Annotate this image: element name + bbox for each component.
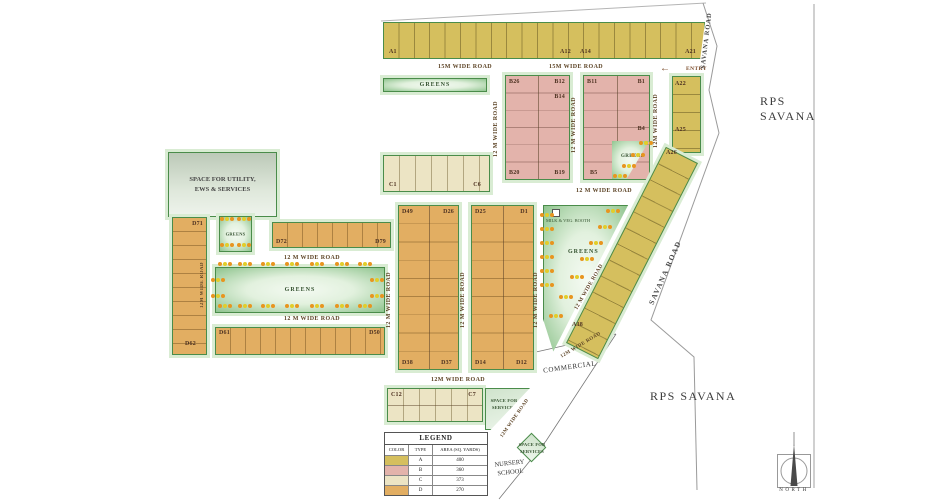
utility-block: SPACE FOR UTILITY, EWS & SERVICES [168,152,277,217]
legend-type: B [409,466,433,475]
flower-cluster-icon [370,278,384,282]
legend-area: 400 [433,456,487,465]
flower-cluster-icon [310,262,324,266]
flower-cluster-icon [238,262,252,266]
plot-block-a-east: A22 A25 [672,76,701,153]
entry-arrow-icon: ← [660,63,670,74]
flower-cluster-icon [285,304,299,308]
plot-block-d72-row: D72 D79 [272,222,391,248]
flower-cluster-icon [631,153,645,157]
flower-cluster-icon [639,141,653,145]
legend-header: COLOR TYPE AREA (SQ. YARDS) [385,445,487,456]
flower-cluster-icon [540,241,554,245]
flower-cluster-icon [237,243,251,247]
flower-cluster-icon [549,314,563,318]
flower-cluster-icon [540,269,554,273]
plot-label: B12 [554,79,565,85]
rps-savana-title-north: RPS SAVANA [760,94,816,124]
flower-cluster-icon [211,294,225,298]
greens-label: GREENS [285,287,316,293]
legend-area: 373 [433,476,487,485]
plot-label: B1 [638,79,645,85]
plot-block-b-west: B26 B12 B14 B20 B19 [505,75,570,180]
lot-divider [429,206,430,369]
plot-label: D72 [276,239,287,245]
legend-swatch [385,466,409,475]
flower-cluster-icon [540,283,554,287]
plot-label: A21 [685,49,696,55]
flower-cluster-icon [370,294,384,298]
legend-type: D [409,486,433,495]
flower-cluster-icon [261,262,275,266]
plot-label: D12 [516,360,527,366]
plot-label: D1 [520,209,528,215]
plot-label: A25 [675,127,686,133]
plot-label: B19 [554,170,565,176]
plot-label: D61 [219,330,230,336]
flower-cluster-icon [358,304,372,308]
plot-label: B14 [554,94,565,100]
flower-cluster-icon [580,257,594,261]
road-label-12m-south: 12M WIDE ROAD [418,377,498,383]
legend-area: 360 [433,466,487,475]
plot-label: A14 [580,49,591,55]
legend-col-area: AREA (SQ. YARDS) [433,445,487,455]
road-label-12m-b-east: 12 M WIDE ROAD [571,89,577,161]
lot-divider [503,206,504,369]
road-label-12m-a-east: 12M WIDE ROAD [653,85,659,157]
flower-cluster-icon [218,304,232,308]
plot-label: C7 [468,392,476,398]
plot-label: D49 [402,209,413,215]
plot-label: A38 [572,322,583,328]
lot-divider [388,405,482,406]
plot-label: D62 [185,341,196,347]
legend: LEGEND COLOR TYPE AREA (SQ. YARDS) A 400… [384,432,488,496]
rps-line2: SAVANA [760,109,816,124]
lot-divider [538,76,539,179]
road-label-15m-west: 15M WIDE ROAD [425,64,505,70]
road-label-12m-below-greens: 12 M WIDE ROAD [272,316,352,322]
flower-cluster-icon [220,217,234,221]
flower-cluster-icon [589,241,603,245]
north-compass [778,432,811,488]
flower-cluster-icon [238,304,252,308]
legend-type: A [409,456,433,465]
legend-swatch [385,456,409,465]
flower-cluster-icon [335,262,349,266]
flower-cluster-icon [211,278,225,282]
flower-cluster-icon [606,209,620,213]
flower-cluster-icon [598,225,612,229]
road-label-12m-mid: 12 M WIDE ROAD [560,188,648,194]
legend-swatch [385,486,409,495]
plot-block-c-north: C1 C6 [383,155,490,192]
plot-label: C1 [389,182,397,188]
plot-label: A22 [675,81,686,87]
plot-label: B4 [638,126,645,132]
plot-block-a-top: A1 A12 A14 A21 [383,22,705,59]
plot-label: A26 [666,150,677,156]
plot-label: B26 [509,79,520,85]
plot-label: B11 [587,79,597,85]
greens-strip: GREENS [383,78,487,92]
plot-label: D71 [192,221,203,227]
site-plan: A1 A12 A14 A21 GREENS B26 B12 B14 B20 B1… [0,0,947,500]
plot-label: C12 [391,392,402,398]
flower-cluster-icon [220,243,234,247]
legend-type: C [409,476,433,485]
greens-label: GREENS [226,232,246,237]
plot-label: D79 [375,239,386,245]
road-label-12m-west: 12M WIDE ROAD [200,252,205,318]
flower-cluster-icon [540,227,554,231]
legend-col-color: COLOR [385,445,409,455]
plot-block-c-south: C12 C7 [387,388,483,422]
greens-label: GREENS [568,249,599,255]
flower-cluster-icon [358,262,372,266]
greens-label: GREENS [420,82,451,88]
flower-cluster-icon [310,304,324,308]
flower-cluster-icon [285,262,299,266]
milk-booth-label: MILK & VEG. BOOTH [546,218,590,223]
utility-label: SPACE FOR UTILITY, EWS & SERVICES [183,175,263,195]
plot-label: D25 [475,209,486,215]
legend-swatch [385,476,409,485]
road-label-12m-b-west: 12 M WIDE ROAD [493,93,499,165]
road-label-12m-above-greens: 12 M WIDE ROAD [272,255,352,261]
road-label-12m-d49: 12 M WIDE ROAD [386,264,392,336]
services-label: SPACE FOR SERVICES [517,441,547,455]
plot-label: A12 [560,49,571,55]
plot-block-d-central-east: D25 D1 D14 D12 [471,205,534,370]
legend-area: 270 [433,486,487,495]
plot-label: C6 [473,182,481,188]
plot-block-d61-row: D61 D50 [215,327,385,355]
plot-label: A1 [389,49,397,55]
flower-cluster-icon [540,255,554,259]
flower-cluster-icon [613,174,627,178]
flower-cluster-icon [570,275,584,279]
flower-cluster-icon [218,262,232,266]
rps-line1: RPS [760,94,816,109]
legend-row: C 373 [385,476,487,486]
plot-label: D26 [443,209,454,215]
north-label: NORTH [774,488,814,493]
rps-savana-title-south: RPS SAVANA [650,389,736,404]
plot-label: B5 [590,170,597,176]
plot-block-b-east: B11 B1 B4 B5 GREENS [583,75,650,180]
road-label-12m-d1: 12 M WIDE ROAD [533,264,539,336]
flower-cluster-icon [540,213,554,217]
legend-row: D 270 [385,486,487,495]
plot-label: D38 [402,360,413,366]
road-label-12m-d25: 12 M WIDE ROAD [460,264,466,336]
plot-label: D14 [475,360,486,366]
flower-cluster-icon [335,304,349,308]
legend-title: LEGEND [385,433,487,445]
flower-cluster-icon [559,295,573,299]
legend-row: A 400 [385,456,487,466]
flower-cluster-icon [261,304,275,308]
legend-row: B 360 [385,466,487,476]
road-label-15m-east: 15M WIDE ROAD [536,64,616,70]
plot-block-d-central-west: D49 D26 D38 D37 [398,205,459,370]
legend-col-type: TYPE [409,445,433,455]
flower-cluster-icon [622,164,636,168]
plot-label: B20 [509,170,520,176]
plot-label: D50 [369,330,380,336]
flower-cluster-icon [237,217,251,221]
plot-label: D37 [441,360,452,366]
